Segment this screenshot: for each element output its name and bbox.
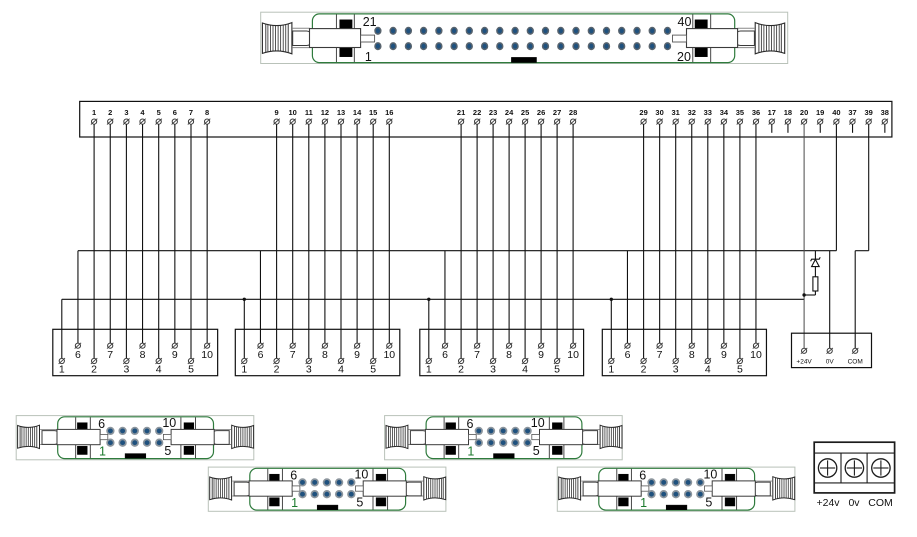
svg-text:4: 4 [522, 363, 528, 375]
svg-text:33: 33 [704, 108, 712, 117]
svg-text:0V: 0V [826, 359, 835, 366]
svg-text:6: 6 [467, 417, 474, 431]
svg-text:9: 9 [538, 349, 544, 361]
svg-text:5: 5 [356, 496, 363, 510]
svg-text:20: 20 [677, 50, 691, 64]
svg-text:1: 1 [467, 445, 474, 459]
svg-text:2: 2 [458, 363, 464, 375]
svg-text:1: 1 [640, 496, 647, 510]
svg-text:+24v: +24v [816, 497, 840, 509]
svg-text:40: 40 [832, 108, 840, 117]
svg-text:10: 10 [289, 108, 297, 117]
svg-text:8: 8 [506, 349, 512, 361]
svg-text:5: 5 [705, 496, 712, 510]
svg-text:16: 16 [385, 108, 393, 117]
svg-text:3: 3 [306, 363, 312, 375]
svg-text:15: 15 [369, 108, 377, 117]
svg-text:4: 4 [338, 363, 344, 375]
svg-text:3: 3 [124, 108, 128, 117]
svg-text:10: 10 [531, 416, 545, 430]
svg-text:+24V: +24V [796, 359, 812, 366]
svg-text:5: 5 [737, 363, 743, 375]
svg-text:21: 21 [363, 15, 377, 29]
svg-text:1: 1 [365, 50, 372, 64]
svg-text:1: 1 [92, 108, 96, 117]
svg-text:13: 13 [337, 108, 345, 117]
svg-text:6: 6 [75, 349, 81, 361]
svg-text:2: 2 [274, 363, 280, 375]
svg-text:6: 6 [639, 468, 646, 482]
svg-text:28: 28 [569, 108, 577, 117]
svg-text:27: 27 [553, 108, 561, 117]
svg-text:31: 31 [672, 108, 680, 117]
svg-text:5: 5 [533, 444, 540, 458]
svg-text:10: 10 [383, 349, 395, 361]
svg-text:2: 2 [641, 363, 647, 375]
svg-text:34: 34 [720, 108, 729, 117]
svg-text:5: 5 [554, 363, 560, 375]
svg-text:1: 1 [99, 445, 106, 459]
svg-text:9: 9 [275, 108, 279, 117]
svg-text:6: 6 [173, 108, 177, 117]
svg-text:1: 1 [241, 363, 247, 375]
svg-text:7: 7 [290, 349, 296, 361]
svg-text:8: 8 [322, 349, 328, 361]
svg-text:7: 7 [189, 108, 193, 117]
svg-text:36: 36 [752, 108, 760, 117]
svg-text:7: 7 [474, 349, 480, 361]
svg-text:6: 6 [442, 349, 448, 361]
svg-text:9: 9 [354, 349, 360, 361]
svg-text:1: 1 [59, 363, 65, 375]
svg-text:10: 10 [703, 468, 717, 482]
svg-text:9: 9 [172, 349, 178, 361]
svg-text:4: 4 [156, 363, 162, 375]
svg-text:18: 18 [784, 108, 792, 117]
svg-text:9: 9 [721, 349, 727, 361]
svg-text:6: 6 [625, 349, 631, 361]
svg-text:22: 22 [473, 108, 481, 117]
svg-text:5: 5 [157, 108, 161, 117]
svg-text:8: 8 [689, 349, 695, 361]
svg-text:19: 19 [816, 108, 824, 117]
svg-text:7: 7 [107, 349, 113, 361]
svg-text:3: 3 [123, 363, 129, 375]
svg-text:8: 8 [205, 108, 209, 117]
svg-text:21: 21 [457, 108, 465, 117]
svg-text:23: 23 [489, 108, 497, 117]
svg-text:37: 37 [848, 108, 856, 117]
svg-text:6: 6 [258, 349, 264, 361]
svg-text:2: 2 [108, 108, 112, 117]
svg-text:3: 3 [490, 363, 496, 375]
svg-text:35: 35 [736, 108, 744, 117]
svg-text:40: 40 [678, 15, 692, 29]
svg-text:5: 5 [370, 363, 376, 375]
svg-text:12: 12 [321, 108, 329, 117]
svg-text:2: 2 [91, 363, 97, 375]
svg-text:1: 1 [608, 363, 614, 375]
svg-text:6: 6 [98, 417, 105, 431]
svg-text:30: 30 [655, 108, 663, 117]
svg-text:4: 4 [705, 363, 711, 375]
svg-text:COM: COM [868, 497, 893, 509]
svg-text:32: 32 [688, 108, 696, 117]
svg-text:6: 6 [290, 468, 297, 482]
svg-text:10: 10 [162, 416, 176, 430]
svg-text:5: 5 [164, 444, 171, 458]
svg-text:COM: COM [848, 359, 863, 366]
svg-text:11: 11 [305, 108, 313, 117]
svg-text:3: 3 [673, 363, 679, 375]
svg-text:39: 39 [865, 108, 873, 117]
svg-text:20: 20 [800, 108, 808, 117]
svg-text:14: 14 [353, 108, 362, 117]
svg-text:1: 1 [291, 496, 298, 510]
svg-text:17: 17 [768, 108, 776, 117]
svg-text:25: 25 [521, 108, 529, 117]
svg-text:10: 10 [750, 349, 762, 361]
svg-text:1: 1 [426, 363, 432, 375]
svg-text:24: 24 [505, 108, 514, 117]
svg-text:7: 7 [657, 349, 663, 361]
svg-text:10: 10 [354, 468, 368, 482]
svg-text:26: 26 [537, 108, 545, 117]
svg-text:38: 38 [881, 108, 889, 117]
svg-text:29: 29 [639, 108, 647, 117]
svg-text:5: 5 [188, 363, 194, 375]
svg-text:10: 10 [201, 349, 213, 361]
svg-text:0v: 0v [848, 497, 860, 509]
svg-text:10: 10 [567, 349, 579, 361]
svg-text:8: 8 [140, 349, 146, 361]
